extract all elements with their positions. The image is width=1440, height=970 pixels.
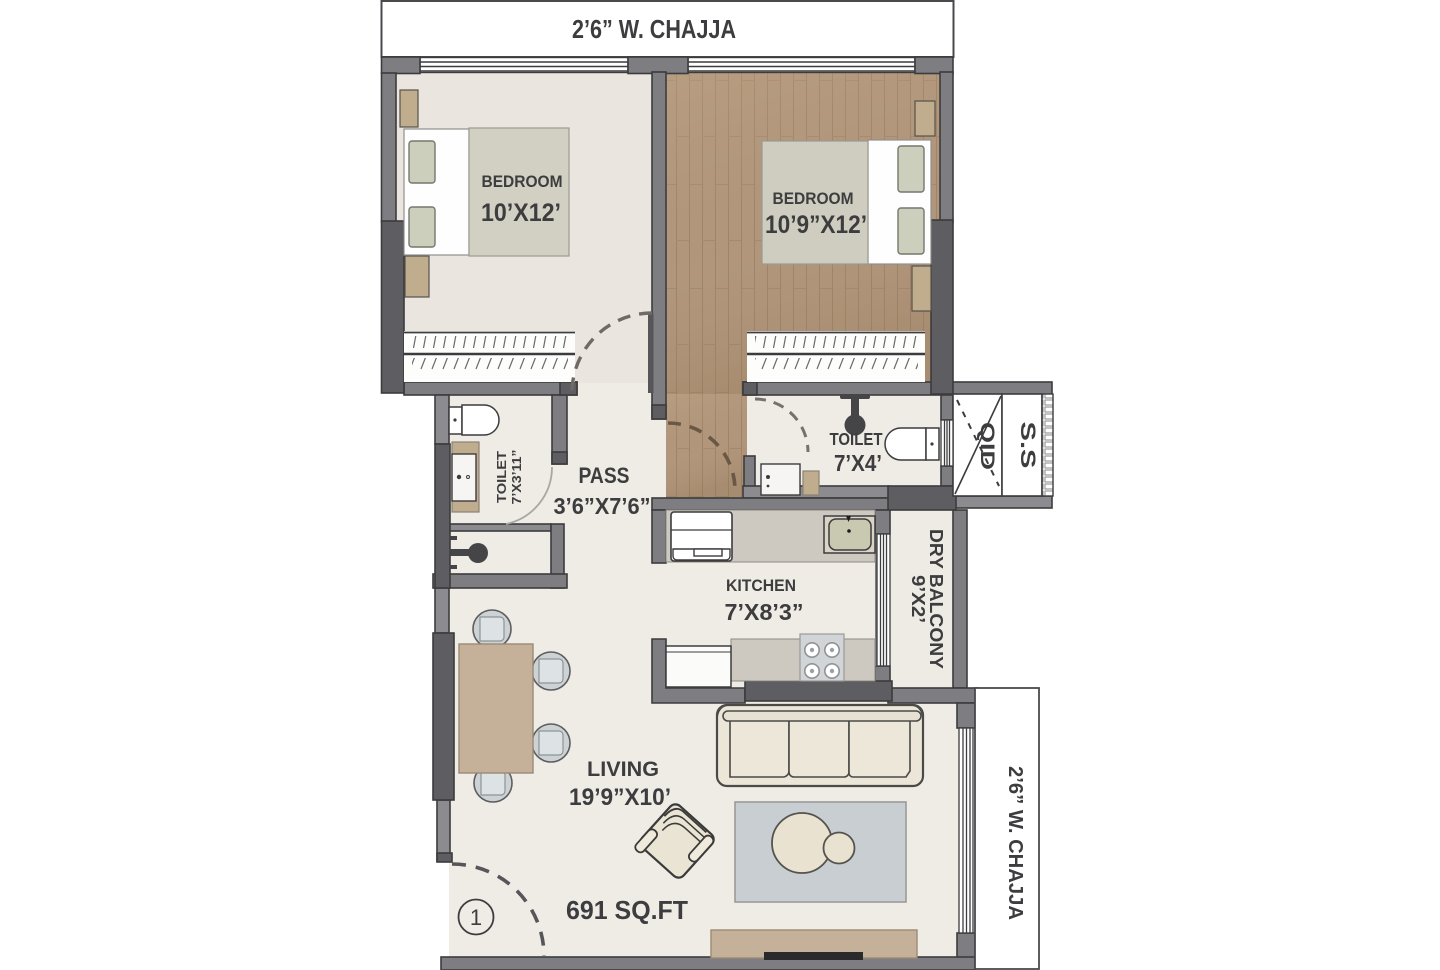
svg-text:PASS: PASS	[579, 463, 630, 488]
svg-text:S.S: S.S	[1016, 422, 1039, 469]
svg-text:2’6” W. CHAJJA: 2’6” W. CHAJJA	[572, 14, 736, 44]
svg-text:7’X4’: 7’X4’	[834, 450, 882, 476]
svg-text:QID: QID	[976, 422, 997, 470]
svg-text:19’9”X10’: 19’9”X10’	[569, 784, 671, 811]
svg-text:BEDROOM: BEDROOM	[773, 190, 854, 208]
svg-text:7’X3’11”: 7’X3’11”	[509, 450, 524, 505]
svg-text:10’9”X12’: 10’9”X12’	[765, 211, 867, 239]
svg-text:KITCHEN: KITCHEN	[726, 577, 796, 595]
svg-text:TOILET: TOILET	[494, 451, 509, 503]
svg-text:7’X8’3”: 7’X8’3”	[725, 599, 804, 625]
svg-text:DRY BALCONY: DRY BALCONY	[926, 529, 946, 669]
svg-text:1: 1	[470, 905, 482, 930]
svg-text:2’6” W. CHAJJA: 2’6” W. CHAJJA	[1004, 766, 1026, 920]
svg-text:10’X12’: 10’X12’	[481, 199, 561, 227]
svg-text:691 SQ.FT: 691 SQ.FT	[566, 895, 688, 925]
svg-text:9’X2’: 9’X2’	[908, 575, 928, 623]
svg-text:TOILET: TOILET	[830, 429, 883, 449]
svg-text:BEDROOM: BEDROOM	[482, 173, 563, 191]
svg-text:LIVING: LIVING	[587, 758, 659, 781]
svg-text:3’6”X7’6”: 3’6”X7’6”	[554, 493, 651, 519]
